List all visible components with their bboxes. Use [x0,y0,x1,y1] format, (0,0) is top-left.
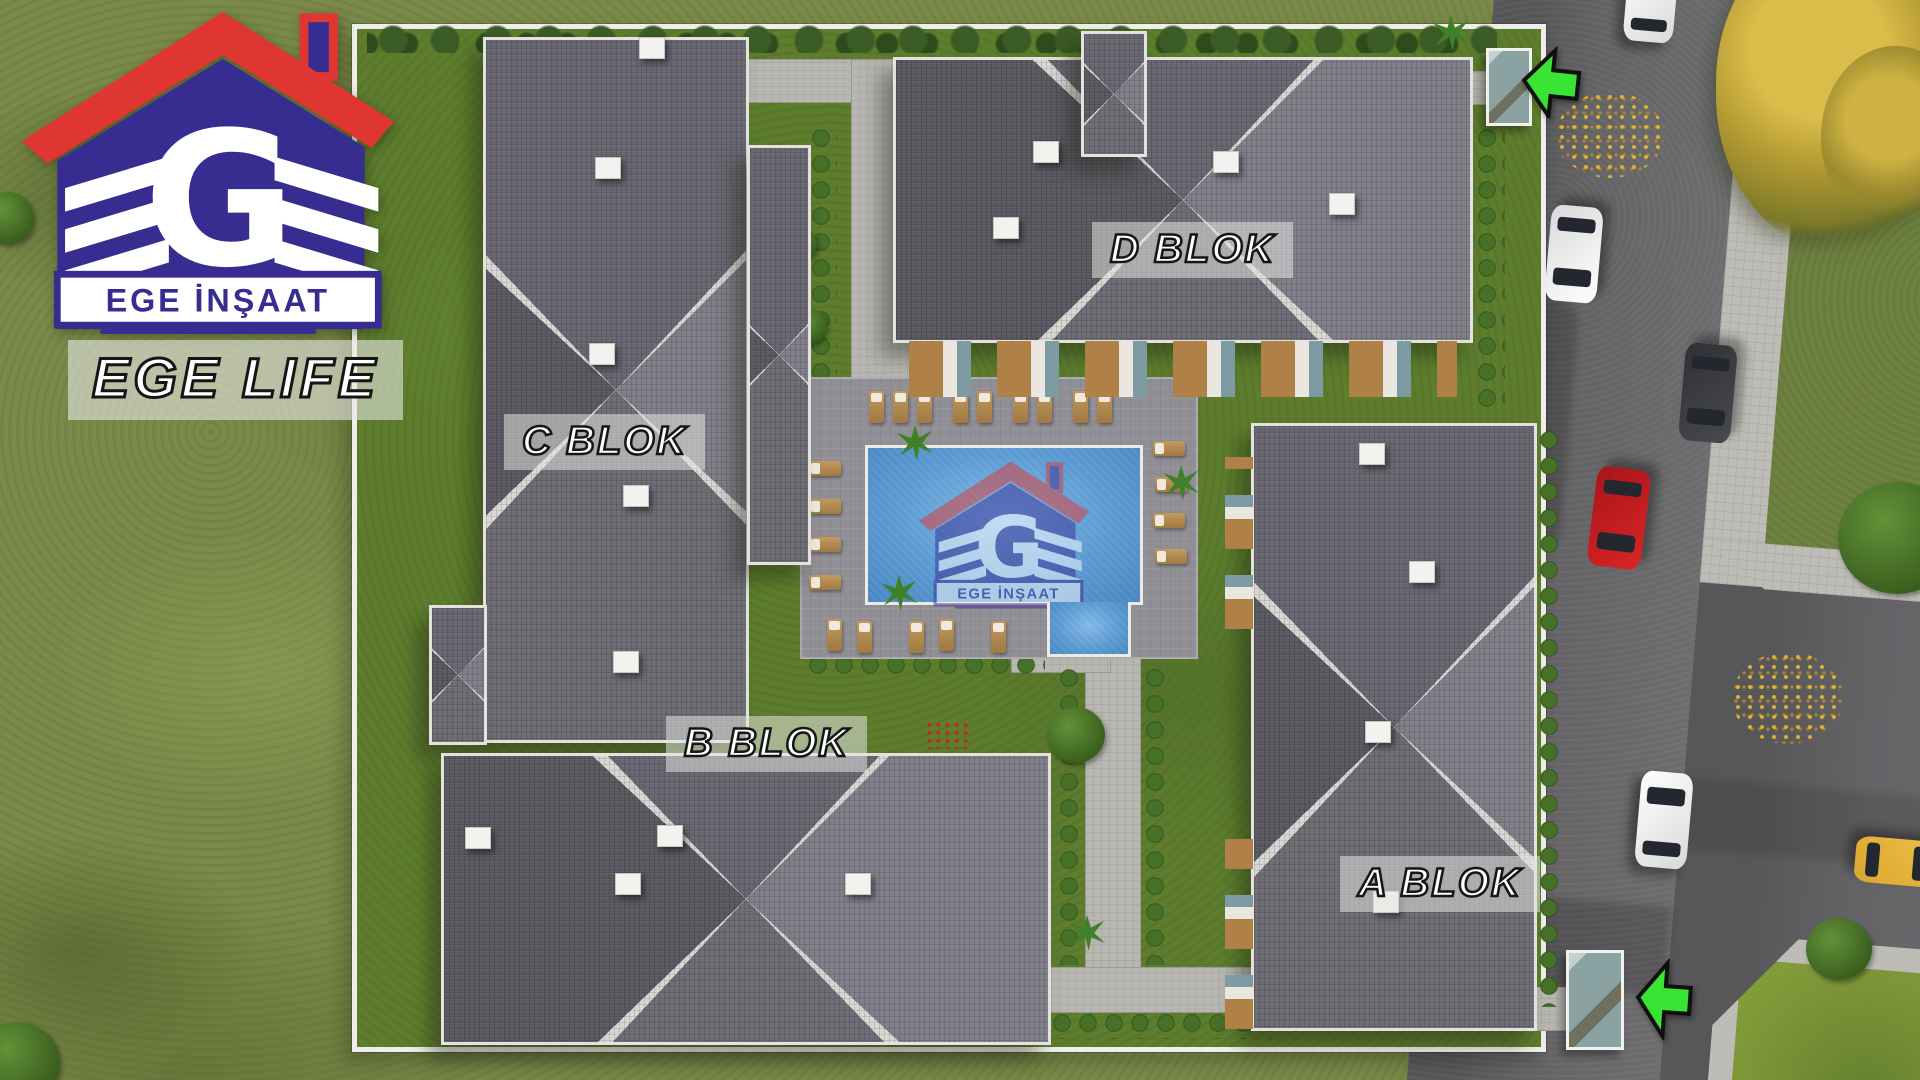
fallen-leaves [1732,652,1844,744]
chimney [845,873,871,895]
island-bush [1806,918,1872,980]
building-d-roof [893,57,1473,343]
red-flowers [925,721,969,749]
chimney [623,485,649,507]
chimney [1365,721,1391,743]
building-b-roof [441,753,1051,1045]
aerial-site-render: C BLOK D BLOK B BLOK A BLOK EGE LIFE [0,0,1920,1080]
label-b-blok[interactable]: B BLOK [666,716,867,772]
south-entrance-gate [1566,950,1624,1050]
building-c-wing-roof [429,605,487,745]
hedge-row [1537,427,1561,1007]
chimney [1359,443,1385,465]
building-c-roof [483,37,749,743]
hedge-row [1143,665,1167,965]
label-c-blok[interactable]: C BLOK [504,414,705,470]
label-d-blok[interactable]: D BLOK [1092,222,1293,278]
sun-lounger [809,575,841,590]
sun-lounger [809,461,841,476]
chimney [613,651,639,673]
sun-lounger [809,537,841,552]
car-white-northbound [1634,770,1694,870]
building-c-wing-roof [747,145,811,565]
building-a-balconies [1225,457,1253,629]
sun-lounger [909,621,924,653]
chimney [1409,561,1435,583]
round-tree [1047,707,1105,763]
sun-lounger [869,391,884,423]
sun-lounger [1155,549,1187,564]
sun-lounger [809,499,841,514]
sun-lounger [1153,513,1185,528]
building-a-roof [1251,423,1537,1031]
chimney [589,343,615,365]
building-d-balconies [909,341,1457,397]
chimney [657,825,683,847]
label-a-blok[interactable]: A BLOK [1340,856,1540,912]
chimney [993,217,1019,239]
kids-pool [1047,602,1131,657]
chimney [1213,151,1239,173]
car-dark-southbound [1678,342,1738,444]
pool-watermark-logo [918,458,1090,610]
car-white-southbound [1544,204,1604,304]
chimney [615,873,641,895]
north-entrance-arrow[interactable] [1516,43,1583,121]
chimney [465,827,491,849]
building-d-entrance-roof [1081,31,1147,157]
project-name-label: EGE LIFE [68,340,403,420]
chimney [595,157,621,179]
sun-lounger [827,619,842,651]
south-entrance-arrow[interactable] [1631,956,1695,1042]
company-logo [22,4,394,337]
sun-lounger [991,621,1006,653]
sun-lounger [857,621,872,653]
swimming-pool [865,445,1143,605]
building-a-balconies [1225,839,1253,1029]
chimney [639,37,665,59]
chimney [1033,141,1059,163]
sun-lounger [939,619,954,651]
hedge-row [1475,125,1505,415]
edge-bush [0,1022,60,1080]
taxi-yellow [1853,835,1920,888]
sun-lounger [893,391,908,423]
chimney [1329,193,1355,215]
sun-lounger [1153,441,1185,456]
